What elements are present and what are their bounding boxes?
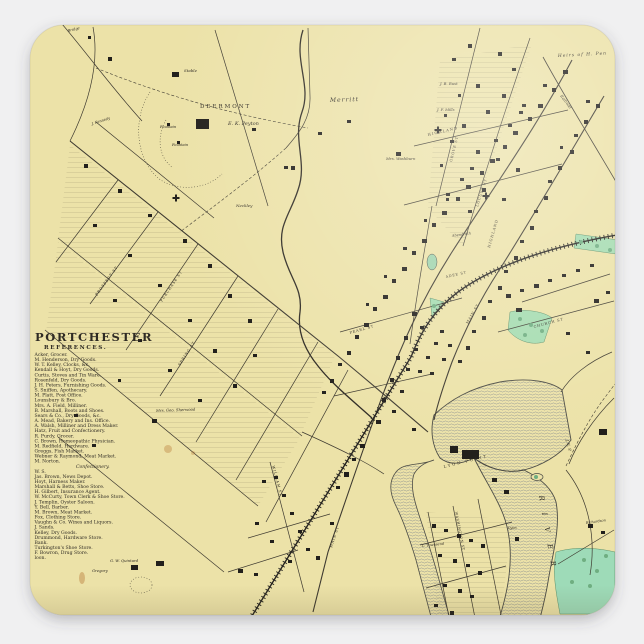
bottom-edge-shade <box>30 585 615 615</box>
scene-svg: DEERMONTE. K. PeytonStableFountainFounta… <box>0 0 644 644</box>
product-photo: DEERMONTE. K. PeytonStableFountainFounta… <box>0 0 644 644</box>
photo-sheen <box>30 25 615 615</box>
map: DEERMONTE. K. PeytonStableFountainFounta… <box>30 24 641 644</box>
